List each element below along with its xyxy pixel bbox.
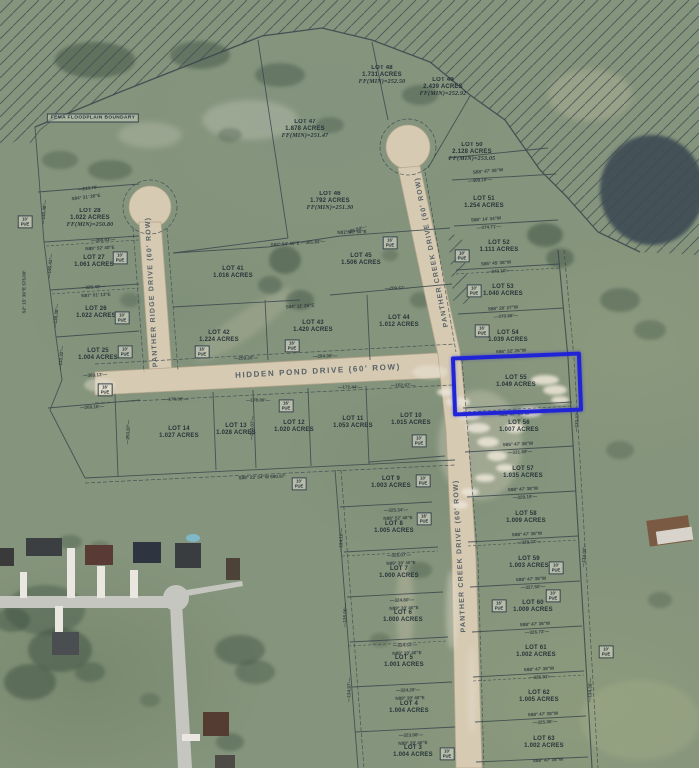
dimension-label: S88° 47' 38"W: [524, 666, 555, 673]
lot-label-lot-9: LOT 91.003 ACRES: [371, 476, 411, 490]
dimension-label: —331.69'—: [508, 449, 533, 455]
dimension-label: —409.18'—: [468, 176, 493, 183]
dimension-label: S88° 47' 38"W: [512, 531, 543, 538]
pue-box: 10' PUE: [292, 477, 307, 490]
pue-box: 16' PUE: [279, 399, 294, 412]
dimension-label: —329.19'—: [513, 494, 538, 500]
street-name-hidden-pond-drive: HIDDEN POND DRIVE (60' ROW): [235, 362, 401, 380]
dimension-label: —209.57'—: [385, 286, 409, 291]
dimension-label: N89° 39' 40"E: [395, 695, 425, 701]
dimension-label: —134.97'—: [346, 678, 352, 703]
lot-label-lot-42: LOT 421.224 ACRES: [199, 330, 239, 344]
lot-label-lot-48: LOT 481.731 ACRESFF(MIN)=252.50: [359, 65, 406, 87]
pue-box: 10' PUE: [118, 345, 133, 358]
dimension-label: S88° 14' 34"W: [471, 215, 502, 222]
dimension-label: S88° 22' 54"W 880.97': [239, 474, 286, 481]
lot-label-lot-5: LOT 51.001 ACRES: [384, 655, 424, 669]
dimension-label: —133.32'—: [57, 346, 64, 371]
lot-label-lot-58: LOT 581.009 ACRES: [506, 511, 546, 525]
dimension-label: N89° 52' 40"E: [85, 245, 115, 252]
dimension-label: —172.44'—: [338, 385, 362, 390]
dimension-label: —328.37'—: [517, 539, 542, 545]
dimension-label: —323.98'—: [399, 732, 424, 738]
dimension-label: —210.76'—: [78, 184, 103, 192]
pue-box: 16' PUE: [492, 599, 507, 612]
dimension-label: —343.10'—: [487, 268, 512, 275]
lot-label-lot-43: LOT 431.420 ACRES: [293, 320, 333, 334]
lot-label-lot-7: LOT 71.000 ACRES: [379, 566, 419, 580]
lot-label-lot-57: LOT 571.035 ACRES: [503, 466, 543, 480]
lot-label-lot-53: LOT 531.040 ACRES: [483, 284, 523, 298]
dimension-label: —269.16'—: [80, 404, 105, 410]
dimension-label: —140.48'—: [40, 200, 47, 225]
street-name-panther-creek-drive-lower: PANTHER CREEK DRIVE (60' ROW): [453, 479, 468, 632]
dimension-label: —138.38'—: [52, 304, 59, 329]
lot-label-lot-63: LOT 631.002 ACRES: [524, 736, 564, 750]
aerial-plat-map[interactable]: FEMA FLOODPLAIN BOUNDARY LOT 471.878 ACR…: [0, 0, 699, 768]
dimension-label: —152.67'—: [391, 383, 415, 388]
dimension-label: —374.71'—: [477, 224, 502, 231]
pue-box: 10' PUE: [467, 284, 482, 297]
dimension-label: S82° 54' 46"E —381.82'—: [271, 239, 326, 248]
dimension-label: —135.00'—: [342, 603, 348, 628]
dimension-label: —325.43'—: [81, 284, 106, 290]
dimension-label: S84° 31' 26"E: [71, 193, 101, 202]
pue-box: 16' PUE: [285, 339, 300, 352]
pue-box: 10' PUE: [115, 311, 130, 324]
pue-box: 16' PUE: [417, 512, 432, 525]
dimension-label: N89° 39' 40"E: [386, 560, 416, 566]
dimension-label: —324.80'—: [390, 597, 415, 603]
lot-label-lot-26: LOT 261.022 ACRES: [76, 306, 116, 320]
fema-floodplain-label: FEMA FLOODPLAIN BOUNDARY: [47, 114, 139, 123]
lot-label-lot-28: LOT 281.022 ACRESFF(MIN)=250.80: [67, 208, 114, 230]
lot-label-lot-44: LOT 441.012 ACRES: [379, 315, 419, 329]
dimension-label: S88° 20' 27"W: [488, 304, 519, 311]
dimension-label: —259.20'—: [234, 355, 259, 361]
dimension-label: —325.91'—: [529, 674, 554, 680]
lot-label-lot-6: LOT 61.000 ACRES: [383, 610, 423, 624]
lot-label-lot-50: LOT 502.128 ACRESFF(MIN)=253.05: [449, 142, 496, 164]
pue-box: 10' PUE: [440, 747, 455, 760]
dimension-label: —370.66'—: [494, 313, 519, 320]
lot-label-lot-12: LOT 121.020 ACRES: [274, 420, 314, 434]
lot-label-lot-47: LOT 471.878 ACRESFF(MIN)=251.47: [282, 119, 329, 141]
dimension-label: —326.73'—: [525, 629, 550, 635]
pue-box: 10' PUE: [549, 561, 564, 574]
lot-label-lot-51: LOT 511.254 ACRES: [464, 196, 504, 210]
pue-box: 16' PUE: [98, 383, 113, 396]
lot-label-lot-4: LOT 41.004 ACRES: [389, 701, 429, 715]
dimension-label: S85° 47' 38"W: [503, 441, 534, 448]
dimension-label: N89° 39' 40"E: [389, 605, 419, 611]
pue-box: 10' PUE: [546, 589, 561, 602]
lot-label-lot-3: LOT 31.004 ACRES: [393, 745, 433, 759]
dimension-label: —294.98'—: [313, 353, 338, 359]
pue-box: 10' PUE: [416, 474, 431, 487]
pue-box: 10' PUE: [18, 215, 33, 228]
lot-label-lot-61: LOT 611.002 ACRES: [516, 645, 556, 659]
lot-label-lot-27: LOT 271.061 ACRES: [74, 255, 114, 269]
pue-box: 10' PUE: [599, 645, 614, 658]
lot-label-lot-45: LOT 451.506 ACRES: [341, 253, 381, 267]
dimension-label: —327.50'—: [521, 584, 546, 590]
dimension-label: —325.34'—: [384, 507, 409, 513]
dimension-label: S85° 45' 38"W: [481, 259, 512, 266]
dimension-label: S2° 15' 36"E 575.00': [22, 271, 27, 314]
lot-label-lot-14: LOT 141.027 ACRES: [159, 426, 199, 440]
dimension-label: S88° 47' 38"W: [473, 167, 504, 175]
lot-label-lot-59: LOT 591.003 ACRES: [509, 556, 549, 570]
dimension-label: N88° 52' 40"E: [383, 515, 413, 521]
pue-box: 10' PUE: [455, 249, 470, 262]
dimension-label: —134.36'—: [587, 678, 593, 703]
dimension-label: N89° 39' 40"E: [392, 650, 422, 656]
pue-box: 16' PUE: [195, 345, 210, 358]
dimension-label: —178.00'—: [246, 398, 270, 403]
lot-label-lot-46: LOT 461.792 ACRESFF(MIN)=251.30: [307, 191, 354, 213]
pue-box: 16' PUE: [383, 236, 398, 249]
dimension-label: S84° 11' 26"E: [285, 302, 314, 309]
lot-label-lot-56: LOT 561.007 ACRES: [499, 420, 539, 434]
dimension-label: —324.53'—: [393, 642, 418, 648]
dimension-label: —176.00'—: [164, 397, 188, 402]
highlighted-lot-outline[interactable]: [451, 352, 583, 417]
dimension-label: —308.93'—: [91, 237, 116, 243]
dimension-label: —134.10'—: [338, 528, 344, 553]
pue-box: 10' PUE: [412, 434, 427, 447]
pue-box: 16' PUE: [475, 324, 490, 337]
lot-label-lot-11: LOT 111.053 ACRES: [333, 416, 373, 430]
dimension-label: —303.13'—: [83, 372, 108, 378]
lot-label-lot-10: LOT 101.015 ACRES: [391, 413, 431, 427]
dimension-label: N87° 01' 13"E: [81, 292, 111, 299]
lot-label-lot-41: LOT 411.016 ACRES: [213, 266, 253, 280]
dimension-label: S88° 47' 38"W: [533, 757, 564, 764]
street-name-panther-ridge-drive: PANTHER RIDGE DRIVE (60' ROW): [145, 217, 160, 368]
lot-label-lot-25: LOT 251.004 ACRES: [78, 348, 118, 362]
street-name-panther-creek-drive-upper: PANTHER CREEK DRIVE (60' ROW): [414, 176, 450, 328]
dimension-label: —146.43'—: [46, 254, 53, 279]
lot-label-lot-54: LOT 541.039 ACRES: [488, 330, 528, 344]
dimension-label: N89° 39' 40"E: [398, 740, 428, 746]
dimension-label: S88° 47' 38"W: [528, 711, 559, 718]
dimension-label: —253.87'—: [125, 420, 131, 445]
dimension-label: —324.26'—: [396, 687, 421, 693]
lot-label-lot-8: LOT 81.005 ACRES: [374, 521, 414, 535]
dimension-label: —325.07'—: [387, 552, 412, 558]
dimension-label: S88° 47' 38"W: [520, 621, 551, 628]
plat-labels: FEMA FLOODPLAIN BOUNDARY LOT 471.878 ACR…: [0, 0, 699, 768]
pue-box: 10' PUE: [113, 251, 128, 264]
dimension-label: —134.02'—: [581, 543, 587, 568]
lot-label-lot-52: LOT 521.111 ACRES: [480, 240, 519, 254]
lot-label-lot-62: LOT 621.005 ACRES: [519, 690, 559, 704]
lot-label-lot-49: LOT 492.439 ACRESFF(MIN)=252.92: [420, 77, 467, 99]
dimension-label: —325.06'—: [533, 719, 558, 725]
dimension-label: S88° 47' 38"W: [508, 486, 539, 493]
dimension-label: S88° 47' 38"W: [516, 576, 547, 583]
